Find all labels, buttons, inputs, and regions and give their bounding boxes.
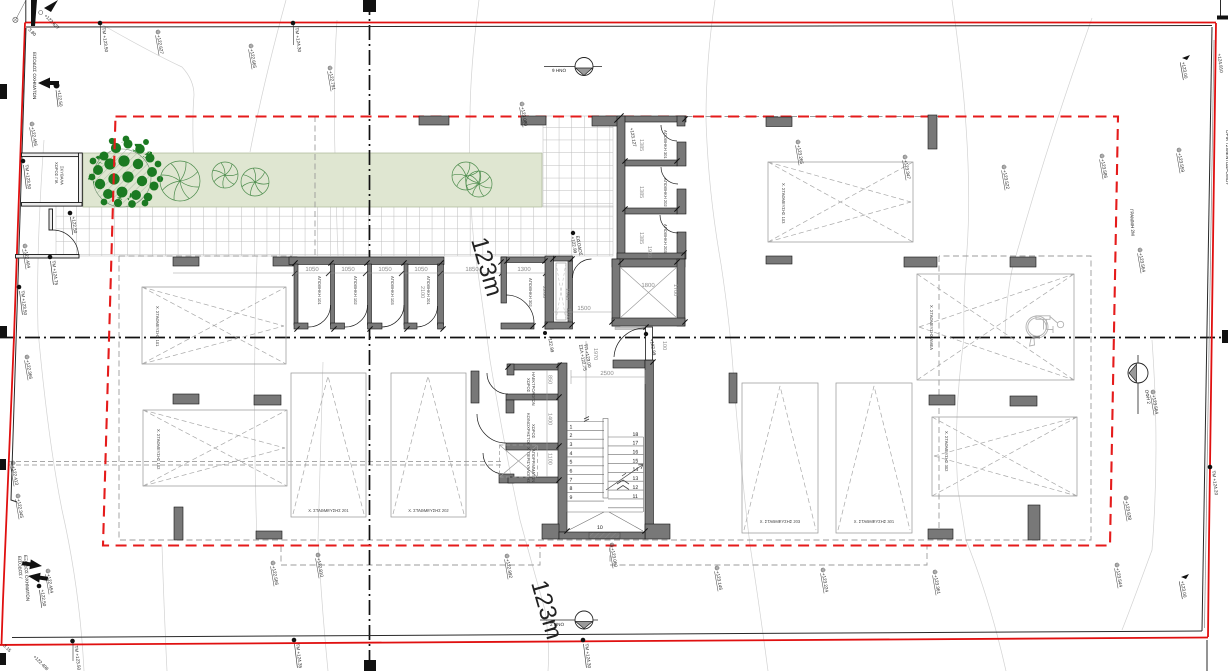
svg-text:2100: 2100 <box>419 286 425 298</box>
svg-text:ΤΜ +124.20: ΤΜ +124.20 <box>1211 470 1219 496</box>
svg-text:3.80: 3.80 <box>27 27 37 37</box>
svg-text:Χ. ΣΤΑΘΜΕΥΣΗΣ ΑΜΕΑ: Χ. ΣΤΑΘΜΕΥΣΗΣ ΑΜΕΑ <box>929 305 934 350</box>
svg-text:10: 10 <box>597 525 603 531</box>
svg-text:ΣΚΥΒΑΛΑ: ΣΚΥΒΑΛΑ <box>60 166 65 185</box>
svg-text:2: 2 <box>570 433 573 439</box>
svg-text:1950: 1950 <box>646 246 652 258</box>
svg-text:+123.127: +123.127 <box>629 127 637 147</box>
svg-text:ΤΜ +123.50: ΤΜ +123.50 <box>101 27 109 53</box>
svg-text:ΕΙΣΟΔΟΣ ΟΧΗΜΑΤΩΝ: ΕΙΣΟΔΟΣ ΟΧΗΜΑΤΩΝ <box>32 52 37 99</box>
svg-text:ΑΠΟΘΗΚΗ 102: ΑΠΟΘΗΚΗ 102 <box>353 276 358 305</box>
svg-text:ΑΠΟΡΡΙΜΜΑΤΩΝ: ΑΠΟΡΡΙΜΜΑΤΩΝ <box>531 449 536 482</box>
svg-text:1970: 1970 <box>592 348 598 360</box>
svg-text:1400: 1400 <box>547 413 553 425</box>
svg-text:123m: 123m <box>525 577 568 642</box>
svg-text:ΑΠΟΘΗΚΗ 101: ΑΠΟΘΗΚΗ 101 <box>317 276 322 305</box>
svg-text:1050: 1050 <box>378 266 392 273</box>
svg-text:1385: 1385 <box>638 186 644 198</box>
svg-text:ΑΠΟΘΗΚΗ 203: ΑΠΟΘΗΚΗ 203 <box>663 224 668 253</box>
svg-text:1700: 1700 <box>672 284 678 296</box>
svg-text:8: 8 <box>570 486 573 492</box>
svg-text:3: 3 <box>570 442 573 448</box>
svg-text:ΑΠΟΘΗΚΗ 201: ΑΠΟΘΗΚΗ 201 <box>426 276 431 305</box>
svg-text:+124.810: +124.810 <box>1217 53 1224 73</box>
svg-text:850: 850 <box>547 375 553 384</box>
svg-text:ΑΠΟΘΗΚΗ 301: ΑΠΟΘΗΚΗ 301 <box>663 130 668 159</box>
svg-text:1050: 1050 <box>341 266 355 273</box>
svg-text:17: 17 <box>633 441 639 447</box>
svg-text:15: 15 <box>633 458 639 464</box>
svg-text:Χ. ΠΕΡΙΣΥΛΛΟΓΗΣ: Χ. ΠΕΡΙΣΥΛΛΟΓΗΣ <box>526 447 531 483</box>
svg-text:100: 100 <box>661 341 667 350</box>
svg-text:18: 18 <box>633 432 639 438</box>
svg-text:9: 9 <box>570 495 573 501</box>
svg-text:9 ΗΝΟ: 9 ΗΝΟ <box>552 68 566 73</box>
svg-text:ΗΛΕΚΤΡΟΛΟΓΩΝ: ΗΛΕΚΤΡΟΛΟΓΩΝ <box>531 372 536 406</box>
svg-text:4: 4 <box>570 451 573 457</box>
svg-text:1: 1 <box>570 424 573 430</box>
svg-text:1385: 1385 <box>638 232 644 244</box>
svg-text:ΑΠΟΘΗΚΗ 202: ΑΠΟΘΗΚΗ 202 <box>663 178 668 207</box>
svg-text:ΤΜ +123.50: ΤΜ +123.50 <box>74 645 82 671</box>
svg-text:1300: 1300 <box>517 266 531 273</box>
svg-text:1500: 1500 <box>577 305 591 312</box>
svg-text:12: 12 <box>633 485 639 491</box>
svg-text:+122.406: +122.406 <box>32 654 49 671</box>
svg-text:ΤΜ +124.30: ΤΜ +124.30 <box>294 27 302 53</box>
svg-text:Χ. ΣΤΑΘΜΕΥΣΗΣ 102: Χ. ΣΤΑΘΜΕΥΣΗΣ 102 <box>156 429 161 470</box>
svg-text:16: 16 <box>633 450 639 456</box>
svg-text:Χ. ΣΤΑΘΜΕΥΣΗΣ 101: Χ. ΣΤΑΘΜΕΥΣΗΣ 101 <box>155 306 160 347</box>
svg-text:ΑΠΟΘΗΚΗ 103: ΑΠΟΘΗΚΗ 103 <box>390 276 395 305</box>
svg-text:Χ. ΣΤΑΘΜΕΥΣΗΣ 201: Χ. ΣΤΑΘΜΕΥΣΗΣ 201 <box>308 508 349 513</box>
svg-text:13: 13 <box>633 476 639 482</box>
svg-text:2500: 2500 <box>600 370 614 377</box>
svg-text:Χ. ΣΤΑΘΜΕΥΣΗΣ 103: Χ. ΣΤΑΘΜΕΥΣΗΣ 103 <box>781 183 786 224</box>
svg-text:ΧΩΡΟΣ: ΧΩΡΟΣ <box>526 378 531 393</box>
svg-text:ΑΠΟΘΗΚΗ 302: ΑΠΟΘΗΚΗ 302 <box>528 278 533 307</box>
svg-text:ΟΦΗ 2: ΟΦΗ 2 <box>1144 389 1151 404</box>
svg-text:ΓΡΑΜΜΗ 2Μ: ΓΡΑΜΜΗ 2Μ <box>1129 209 1135 236</box>
svg-text:1100: 1100 <box>547 453 553 465</box>
svg-text:7: 7 <box>570 477 573 483</box>
svg-text:Χ. ΣΤΑΘΜΕΥΣΗΣ 202: Χ. ΣΤΑΘΜΕΥΣΗΣ 202 <box>408 508 449 513</box>
svg-text:ΕΙΣΟΔΟΣ /: ΕΙΣΟΔΟΣ / <box>17 556 23 580</box>
svg-text:1050: 1050 <box>414 266 428 273</box>
svg-text:Χ. ΣΤΑΘΜΕΥΣΗΣ 302: Χ. ΣΤΑΘΜΕΥΣΗΣ 302 <box>944 431 949 472</box>
svg-text:1800: 1800 <box>641 282 655 289</box>
svg-text:1050: 1050 <box>305 266 319 273</box>
svg-text:ΧΩΡΟΣ ΓΙΑ: ΧΩΡΟΣ ΓΙΑ <box>54 162 59 184</box>
svg-text:1385: 1385 <box>638 139 644 151</box>
svg-text:5: 5 <box>570 460 573 466</box>
svg-text:1940: 1940 <box>564 288 570 300</box>
svg-text:6: 6 <box>570 469 573 475</box>
svg-text:1100: 1100 <box>565 308 571 320</box>
svg-text:Χ. ΣΤΑΘΜΕΥΣΗΣ 301: Χ. ΣΤΑΘΜΕΥΣΗΣ 301 <box>854 519 895 524</box>
svg-text:ΧΩΡΟΣ: ΧΩΡΟΣ <box>531 424 536 439</box>
svg-text:Χ. ΣΤΑΘΜΕΥΣΗΣ 203: Χ. ΣΤΑΘΜΕΥΣΗΣ 203 <box>760 519 801 524</box>
svg-text:11: 11 <box>633 494 638 500</box>
svg-text:ΚΟΙΝΟΧΡΗΣΤΟΣ: ΚΟΙΝΟΧΡΗΣΤΟΣ <box>526 413 531 446</box>
